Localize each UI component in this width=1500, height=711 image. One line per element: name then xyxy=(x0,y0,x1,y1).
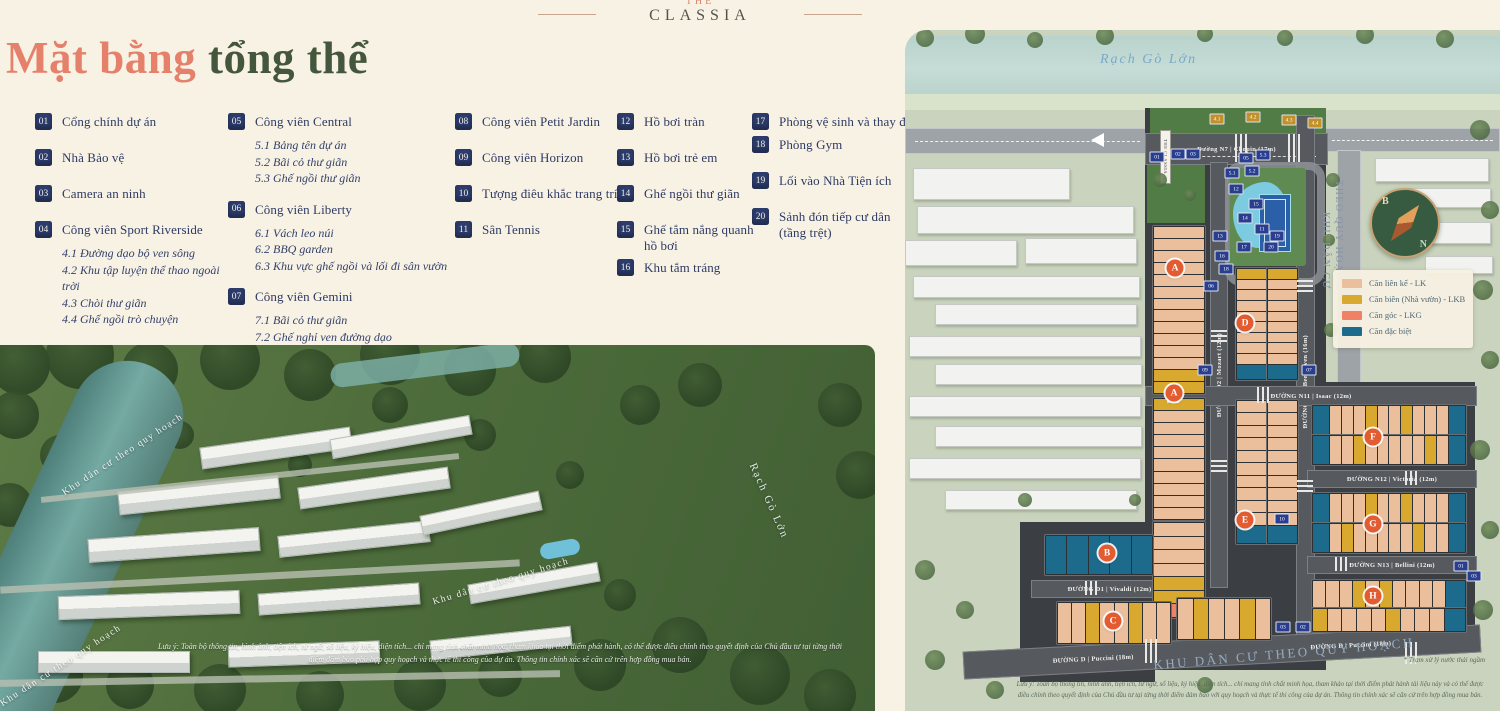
crosswalk xyxy=(1297,280,1313,292)
lot-cell xyxy=(1268,488,1297,499)
lot-cell xyxy=(1354,524,1365,552)
lot-cell xyxy=(1437,436,1448,464)
lot-cell xyxy=(1154,411,1204,422)
lot-cell xyxy=(1268,312,1297,322)
legend-column: 17Phòng vệ sinh và thay đồ18Phòng Gym19L… xyxy=(752,113,920,246)
legend-item-number: 04 xyxy=(35,221,52,238)
lot-cell xyxy=(1425,524,1436,552)
tree-icon xyxy=(604,579,636,611)
lot-cell xyxy=(1268,365,1297,379)
lot-block xyxy=(1312,580,1466,608)
lot-cell xyxy=(1046,536,1066,574)
lot-cell xyxy=(1154,508,1204,519)
legend-item-label: Phòng vệ sinh và thay đồ xyxy=(779,113,912,130)
legend-sub-items: 7.1 Bãi cỏ thư giãn7.2 Ghế nghỉ ven đườn… xyxy=(255,312,450,345)
lot-cell xyxy=(1354,436,1365,464)
numbered-point: 14 xyxy=(1238,213,1253,224)
lot-legend-row: Căn liên kế - LK xyxy=(1342,278,1464,288)
legend-item-number: 05 xyxy=(228,113,245,130)
lot-cell xyxy=(1425,406,1436,434)
legend-item-number: 14 xyxy=(617,185,634,202)
lot-cell xyxy=(1437,494,1448,522)
legend-sub-item: 6.1 Vách leo núi xyxy=(255,225,450,242)
legend-item: 13Hồ bơi trẻ em xyxy=(617,149,757,166)
lot-cell xyxy=(1330,406,1341,434)
legend-item-label: Công viên Petit Jardin xyxy=(482,113,600,130)
legend-item-label: Công viên Sport Riverside xyxy=(62,221,203,238)
lot-cell xyxy=(1154,459,1204,470)
tree-icon xyxy=(620,385,660,425)
legend-item-label: Hồ bơi tràn xyxy=(644,113,705,130)
lot-cell xyxy=(1237,438,1266,449)
lot-cell xyxy=(1157,603,1170,643)
lot-cell xyxy=(1237,365,1266,379)
crosswalk xyxy=(1297,480,1313,492)
compass-icon: B N xyxy=(1370,188,1440,258)
lot-block xyxy=(1312,435,1466,465)
numbered-point: 07 xyxy=(1302,365,1317,376)
tree-icon xyxy=(1277,30,1293,46)
lot-cell xyxy=(1154,423,1204,434)
block-marker: A xyxy=(1166,385,1183,402)
lot-cell xyxy=(1413,494,1424,522)
site-road: ĐƯỜNG N12 | Victoria (12m) xyxy=(1307,470,1477,488)
lot-cell xyxy=(1154,239,1204,250)
lot-cell xyxy=(1086,603,1099,643)
photo-disclaimer: Lưu ý: Toàn bộ thông tin, hình ảnh, tiện… xyxy=(150,640,850,666)
logo-line-left xyxy=(538,14,596,15)
lot-cell xyxy=(1237,501,1266,512)
legend-column: 08Công viên Petit Jardin09Công viên Hori… xyxy=(455,113,623,257)
lot-cell xyxy=(1378,406,1389,434)
lot-cell xyxy=(1342,494,1353,522)
lot-cell xyxy=(1313,406,1329,434)
legend-item-label: Ghế ngồi thư giãn xyxy=(644,185,740,202)
tree-icon xyxy=(519,345,571,383)
lot-cell xyxy=(1268,438,1297,449)
lot-cell xyxy=(1353,581,1365,607)
lot-cell xyxy=(1268,280,1297,290)
lot-cell xyxy=(1328,609,1342,631)
lot-cell xyxy=(1268,526,1297,543)
block-marker: E xyxy=(1237,512,1254,529)
surrounding-road-west xyxy=(905,128,1150,154)
lot-cell xyxy=(1268,354,1297,364)
lot-cell xyxy=(1225,599,1240,639)
lot-cell xyxy=(1237,301,1266,311)
lot-cell xyxy=(1237,413,1266,424)
existing-building xyxy=(909,336,1141,357)
lot-legend-swatch xyxy=(1342,295,1362,304)
crosswalk xyxy=(1257,387,1270,403)
lot-cell xyxy=(1154,370,1204,381)
crosswalk xyxy=(1405,471,1418,485)
lot-cell xyxy=(1430,609,1444,631)
compass-south: N xyxy=(1420,239,1427,250)
tree-icon xyxy=(1129,494,1141,506)
lot-cell xyxy=(1401,436,1412,464)
legend-item-label: Sân Tennis xyxy=(482,221,540,238)
lot-cell xyxy=(1154,435,1204,446)
lot-cell xyxy=(1313,609,1327,631)
lot-legend-row: Căn góc - LKG xyxy=(1342,310,1464,320)
tree-icon xyxy=(556,461,584,489)
lot-cell xyxy=(1154,577,1204,590)
block-marker: B xyxy=(1099,545,1116,562)
lot-cell xyxy=(1237,343,1266,353)
tree-icon xyxy=(956,601,974,619)
legend-item-number: 15 xyxy=(617,221,634,238)
lot-block xyxy=(1153,398,1205,520)
lot-cell xyxy=(1437,406,1448,434)
tree-icon xyxy=(394,659,446,711)
legend-item-number: 02 xyxy=(35,149,52,166)
lot-cell xyxy=(1268,476,1297,487)
photo-building xyxy=(329,415,472,459)
lot-cell xyxy=(1354,406,1365,434)
lot-cell xyxy=(1154,550,1204,563)
road-label: ĐƯỜNG N12 | Victoria (12m) xyxy=(1347,476,1437,483)
legend-sub-item: 5.2 Bãi cỏ thư giãn xyxy=(255,154,450,171)
lot-cell xyxy=(1154,287,1204,298)
lot-block xyxy=(1312,493,1466,523)
numbered-point: 17 xyxy=(1237,242,1252,253)
lot-cell xyxy=(1154,322,1204,333)
lot-cell xyxy=(1449,406,1465,434)
tree-icon xyxy=(986,681,1004,699)
legend-item: 16Khu tắm tráng xyxy=(617,259,757,276)
lot-cell xyxy=(1132,536,1152,574)
lot-block xyxy=(1267,268,1298,380)
lot-cell xyxy=(1425,436,1436,464)
lot-legend-label: Căn biên (Nhà vườn) - LKB xyxy=(1369,294,1465,304)
tree-icon xyxy=(1481,351,1499,369)
lot-cell xyxy=(1154,346,1204,357)
existing-building xyxy=(913,276,1140,298)
lot-cell xyxy=(1268,501,1297,512)
map-river xyxy=(905,36,1500,94)
lot-legend-swatch xyxy=(1342,279,1362,288)
legend-item-label: Sảnh đón tiếp cư dân (tầng trệt) xyxy=(779,208,920,240)
block-marker: D xyxy=(1237,315,1254,332)
project-logo: THE CLASSIA xyxy=(600,0,800,24)
legend-item: 11Sân Tennis xyxy=(455,221,623,238)
lot-legend-swatch xyxy=(1342,311,1362,320)
legend-item: 08Công viên Petit Jardin xyxy=(455,113,623,130)
existing-building xyxy=(917,206,1134,234)
legend-item-label: Công viên Liberty xyxy=(255,201,352,218)
lot-cell xyxy=(1342,436,1353,464)
numbered-point: 5.2 xyxy=(1245,166,1260,177)
block-marker: C xyxy=(1105,613,1122,630)
legend-item: 02Nhà Bảo vệ xyxy=(35,149,230,166)
photo-building xyxy=(419,491,542,536)
numbered-point: 09 xyxy=(1198,365,1213,376)
lot-cell xyxy=(1256,599,1271,639)
legend-sub-item: 6.3 Khu vực ghế ngồi và lối đi sân vườn xyxy=(255,258,450,275)
numbered-point: 06 xyxy=(1204,281,1219,292)
legend-sub-items: 4.1 Đường dạo bộ ven sông4.2 Khu tập luy… xyxy=(62,245,230,328)
lot-cell xyxy=(1268,269,1297,279)
lot-cell xyxy=(1326,581,1338,607)
tree-icon xyxy=(372,387,408,423)
lot-cell xyxy=(1268,322,1297,332)
numbered-point: 01 xyxy=(1150,152,1165,163)
legend-item-number: 10 xyxy=(455,185,472,202)
numbered-point: 03 xyxy=(1467,571,1482,582)
legend-item-number: 03 xyxy=(35,185,52,202)
lot-cell xyxy=(1354,494,1365,522)
legend-item: 20Sảnh đón tiếp cư dân (tầng trệt) xyxy=(752,208,920,240)
lot-cell xyxy=(1058,603,1071,643)
crosswalk xyxy=(1335,557,1348,571)
legend-item: 03Camera an ninh xyxy=(35,185,230,202)
tree-icon xyxy=(925,650,945,670)
lot-cell xyxy=(1268,401,1297,412)
lot-cell xyxy=(1237,290,1266,300)
numbered-point: 19 xyxy=(1270,231,1285,242)
map-footnote: * Trạm xử lý nước thải ngầm xyxy=(1345,656,1485,664)
lot-cell xyxy=(1237,476,1266,487)
lot-cell xyxy=(1154,564,1204,577)
crosswalk xyxy=(1085,581,1097,595)
legend-item-label: Công viên Horizon xyxy=(482,149,583,166)
lot-legend-swatch xyxy=(1342,327,1362,336)
lot-cell xyxy=(1330,524,1341,552)
legend-item: 17Phòng vệ sinh và thay đồ xyxy=(752,113,920,130)
existing-building xyxy=(945,490,1137,510)
legend-sub-items: 6.1 Vách leo núi6.2 BBQ garden6.3 Khu vự… xyxy=(255,225,450,275)
crosswalk xyxy=(1288,134,1301,162)
lot-cell xyxy=(1268,343,1297,353)
lot-cell xyxy=(1194,599,1209,639)
numbered-point: 11 xyxy=(1255,224,1270,235)
lot-cell xyxy=(1237,463,1266,474)
lot-cell xyxy=(1129,603,1142,643)
lot-cell xyxy=(1237,333,1266,343)
lot-cell xyxy=(1380,581,1392,607)
tree-icon xyxy=(1481,521,1499,539)
legend-item-number: 17 xyxy=(752,113,769,130)
lot-cell xyxy=(1240,599,1255,639)
page-title: Mặt bằng tổng thể xyxy=(6,32,368,84)
tree-icon xyxy=(1470,440,1490,460)
legend-item: 14Ghế ngồi thư giãn xyxy=(617,185,757,202)
existing-building xyxy=(909,458,1141,479)
legend-item: 09Công viên Horizon xyxy=(455,149,623,166)
numbered-point: 20 xyxy=(1264,242,1279,253)
legend-item-number: 01 xyxy=(35,113,52,130)
lot-cell xyxy=(1237,426,1266,437)
photo-building xyxy=(277,520,430,558)
lot-cell xyxy=(1313,581,1325,607)
tree-icon xyxy=(284,349,336,401)
lot-cell xyxy=(1154,334,1204,345)
legend-column: 01Cổng chính dự án02Nhà Bảo vệ03Camera a… xyxy=(35,113,230,342)
tree-icon xyxy=(836,451,875,499)
lot-cell xyxy=(1154,523,1204,536)
legend-sub-item: 5.1 Bảng tên dự án xyxy=(255,137,450,154)
legend-item-label: Khu tắm tráng xyxy=(644,259,720,276)
numbered-point: 5.1 xyxy=(1225,168,1240,179)
photo-river-label: Rạch Gò Lớn xyxy=(747,461,791,540)
lot-cell xyxy=(1154,496,1204,507)
tree-icon xyxy=(1018,493,1032,507)
lot-cell xyxy=(1313,524,1329,552)
logo-classia: CLASSIA xyxy=(600,7,800,24)
numbered-point: 05 xyxy=(1239,153,1254,164)
legend-sub-item: 4.2 Khu tập luyện thể thao ngoài trời xyxy=(62,262,230,295)
legend-column: 05Công viên Central5.1 Bảng tên dự án5.2… xyxy=(228,113,450,359)
legend-item-number: 13 xyxy=(617,149,634,166)
lot-cell xyxy=(1067,536,1087,574)
numbered-point: 18 xyxy=(1219,264,1234,275)
site-road: ĐƯỜNG N13 | Bellini (12m) xyxy=(1307,556,1477,574)
tree-icon xyxy=(0,345,50,395)
lot-cell xyxy=(1357,609,1371,631)
map-river-label: Rạch Gò Lớn xyxy=(1100,52,1197,68)
existing-building xyxy=(905,240,1017,266)
tree-icon xyxy=(678,363,722,407)
lot-cell xyxy=(1143,603,1156,643)
legend-item-label: Nhà Bảo vệ xyxy=(62,149,124,166)
lot-cell xyxy=(1401,524,1412,552)
legend-item-label: Công viên Central xyxy=(255,113,352,130)
legend-item-label: Công viên Gemini xyxy=(255,288,353,305)
numbered-point: 4.2 xyxy=(1246,112,1261,123)
legend-sub-item: 4.4 Ghế ngồi trò chuyện xyxy=(62,311,230,328)
numbered-point: 5.3 xyxy=(1256,150,1271,161)
photo-building xyxy=(257,582,420,615)
legend-item-label: Hồ bơi trẻ em xyxy=(644,149,718,166)
lot-cell xyxy=(1237,488,1266,499)
lot-cell xyxy=(1406,581,1418,607)
legend-item: 19Lối vào Nhà Tiện ích xyxy=(752,172,920,189)
photo-pool xyxy=(539,538,581,561)
lot-cell xyxy=(1413,406,1424,434)
legend-sub-item: 6.2 BBQ garden xyxy=(255,241,450,258)
lot-cell xyxy=(1313,436,1329,464)
tree-icon xyxy=(1470,120,1490,140)
compass-north: B xyxy=(1382,196,1389,207)
lot-type-legend: Căn liên kế - LKCăn biên (Nhà vườn) - LK… xyxy=(1333,270,1473,348)
lot-cell xyxy=(1268,301,1297,311)
numbered-point: 02 xyxy=(1171,149,1186,160)
legend-sub-item: 5.3 Ghế ngồi thư giãn xyxy=(255,170,450,187)
tree-icon xyxy=(1481,201,1499,219)
legend-item-label: Lối vào Nhà Tiện ích xyxy=(779,172,892,189)
lot-cell xyxy=(1389,524,1400,552)
tree-icon xyxy=(1473,280,1493,300)
legend-sub-item: 7.2 Ghế nghỉ ven đường dạo xyxy=(255,329,450,346)
existing-building xyxy=(935,364,1142,385)
lot-cell xyxy=(1154,537,1204,550)
tree-icon xyxy=(804,669,856,711)
road-label: ĐƯỜNG N11 | Isaac (12m) xyxy=(1270,393,1351,400)
legend-item: 18Phòng Gym xyxy=(752,136,920,153)
lot-cell xyxy=(1154,358,1204,369)
lot-cell xyxy=(1433,581,1445,607)
legend-item-number: 20 xyxy=(752,208,769,225)
lot-block xyxy=(1312,608,1466,632)
tree-icon xyxy=(818,383,862,427)
lot-cell xyxy=(1449,524,1465,552)
page-title-rest: tổng thể xyxy=(196,33,368,83)
lot-cell xyxy=(1154,227,1204,238)
block-marker: F xyxy=(1365,429,1382,446)
lot-cell xyxy=(1072,603,1085,643)
lot-cell xyxy=(1154,447,1204,458)
legend-item-number: 16 xyxy=(617,259,634,276)
photo-building xyxy=(199,427,353,470)
page: THE CLASSIA Mặt bằng tổng thể 01Cổng chí… xyxy=(0,0,1500,711)
lot-cell xyxy=(1330,494,1341,522)
numbered-point: 03 xyxy=(1186,149,1201,160)
lot-legend-label: Căn đặc biệt xyxy=(1369,326,1411,336)
legend-column: 12Hồ bơi tràn13Hồ bơi trẻ em14Ghế ngồi t… xyxy=(617,113,757,295)
lot-cell xyxy=(1237,269,1266,279)
legend-item-label: Tượng điêu khắc trang trí xyxy=(482,185,618,202)
lot-legend-row: Căn biên (Nhà vườn) - LKB xyxy=(1342,294,1464,304)
lot-cell xyxy=(1415,609,1429,631)
lot-cell xyxy=(1154,472,1204,483)
lot-cell xyxy=(1413,436,1424,464)
lot-cell xyxy=(1178,599,1193,639)
lot-cell xyxy=(1330,436,1341,464)
tree-icon xyxy=(1436,30,1454,48)
road-label: ĐƯỜNG N13 | Bellini (12m) xyxy=(1349,562,1435,569)
legend-item: 07Công viên Gemini xyxy=(228,288,450,305)
photo-building xyxy=(58,590,241,620)
lot-cell xyxy=(1313,494,1329,522)
tree-icon xyxy=(0,391,39,439)
existing-building xyxy=(935,304,1137,325)
legend-item-number: 12 xyxy=(617,113,634,130)
lot-cell xyxy=(1154,275,1204,286)
numbered-point: 13 xyxy=(1213,231,1228,242)
tree-icon xyxy=(1184,189,1196,201)
legend-item: 06Công viên Liberty xyxy=(228,201,450,218)
lot-cell xyxy=(1413,524,1424,552)
tree-icon xyxy=(194,664,246,711)
lot-cell xyxy=(1209,599,1224,639)
legend-item: 01Cổng chính dự án xyxy=(35,113,230,130)
lot-cell xyxy=(1389,406,1400,434)
lot-cell xyxy=(1445,609,1465,631)
lot-cell xyxy=(1449,436,1465,464)
lot-block xyxy=(1312,523,1466,553)
lot-cell xyxy=(1393,581,1405,607)
lot-cell xyxy=(1342,609,1356,631)
map-disclaimer: Lưu ý: Toàn bộ thông tin, hình ảnh, tiện… xyxy=(1010,680,1490,701)
lot-cell xyxy=(1268,413,1297,424)
lot-cell xyxy=(1268,463,1297,474)
crosswalk xyxy=(1211,460,1227,472)
numbered-point: 16 xyxy=(1215,251,1230,262)
lot-legend-label: Căn góc - LKG xyxy=(1369,310,1422,320)
lot-cell xyxy=(1372,609,1386,631)
lot-cell xyxy=(1268,451,1297,462)
lot-cell xyxy=(1437,524,1448,552)
existing-building xyxy=(1375,158,1489,182)
lot-cell xyxy=(1342,406,1353,434)
legend-sub-items: 5.1 Bảng tên dự án5.2 Bãi cỏ thư giãn5.3… xyxy=(255,137,450,187)
lot-cell xyxy=(1268,333,1297,343)
tree-icon xyxy=(1153,173,1167,187)
tree-icon xyxy=(200,345,260,390)
tree-icon xyxy=(915,560,935,580)
lot-cell xyxy=(1386,609,1400,631)
